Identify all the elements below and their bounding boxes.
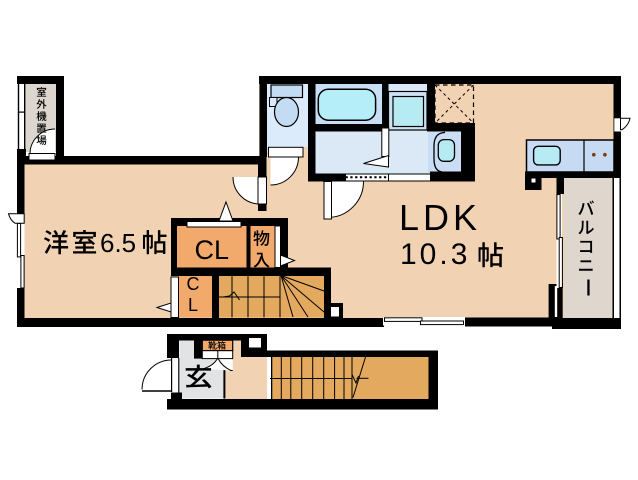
svg-text:6.5: 6.5 — [100, 228, 136, 258]
svg-text:CL: CL — [195, 235, 230, 265]
svg-text:L: L — [188, 295, 198, 315]
svg-text:C: C — [187, 274, 200, 294]
svg-text:LDK: LDK — [399, 197, 481, 238]
svg-text:10.3: 10.3 — [400, 238, 470, 271]
